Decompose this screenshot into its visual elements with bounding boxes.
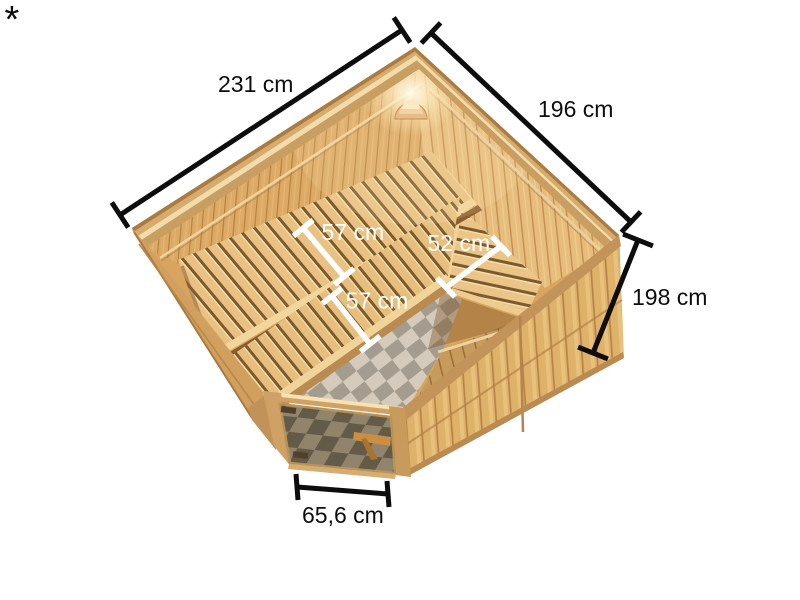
svg-text:231 cm: 231 cm	[218, 71, 293, 97]
svg-text:52 cm: 52 cm	[428, 230, 491, 256]
svg-text:198 cm: 198 cm	[632, 284, 707, 310]
svg-text:57 cm: 57 cm	[346, 288, 409, 314]
svg-text:65,6 cm: 65,6 cm	[302, 502, 384, 528]
svg-text:57 cm: 57 cm	[322, 219, 385, 245]
svg-text:196 cm: 196 cm	[538, 96, 613, 122]
svg-text:*: *	[5, 0, 20, 41]
